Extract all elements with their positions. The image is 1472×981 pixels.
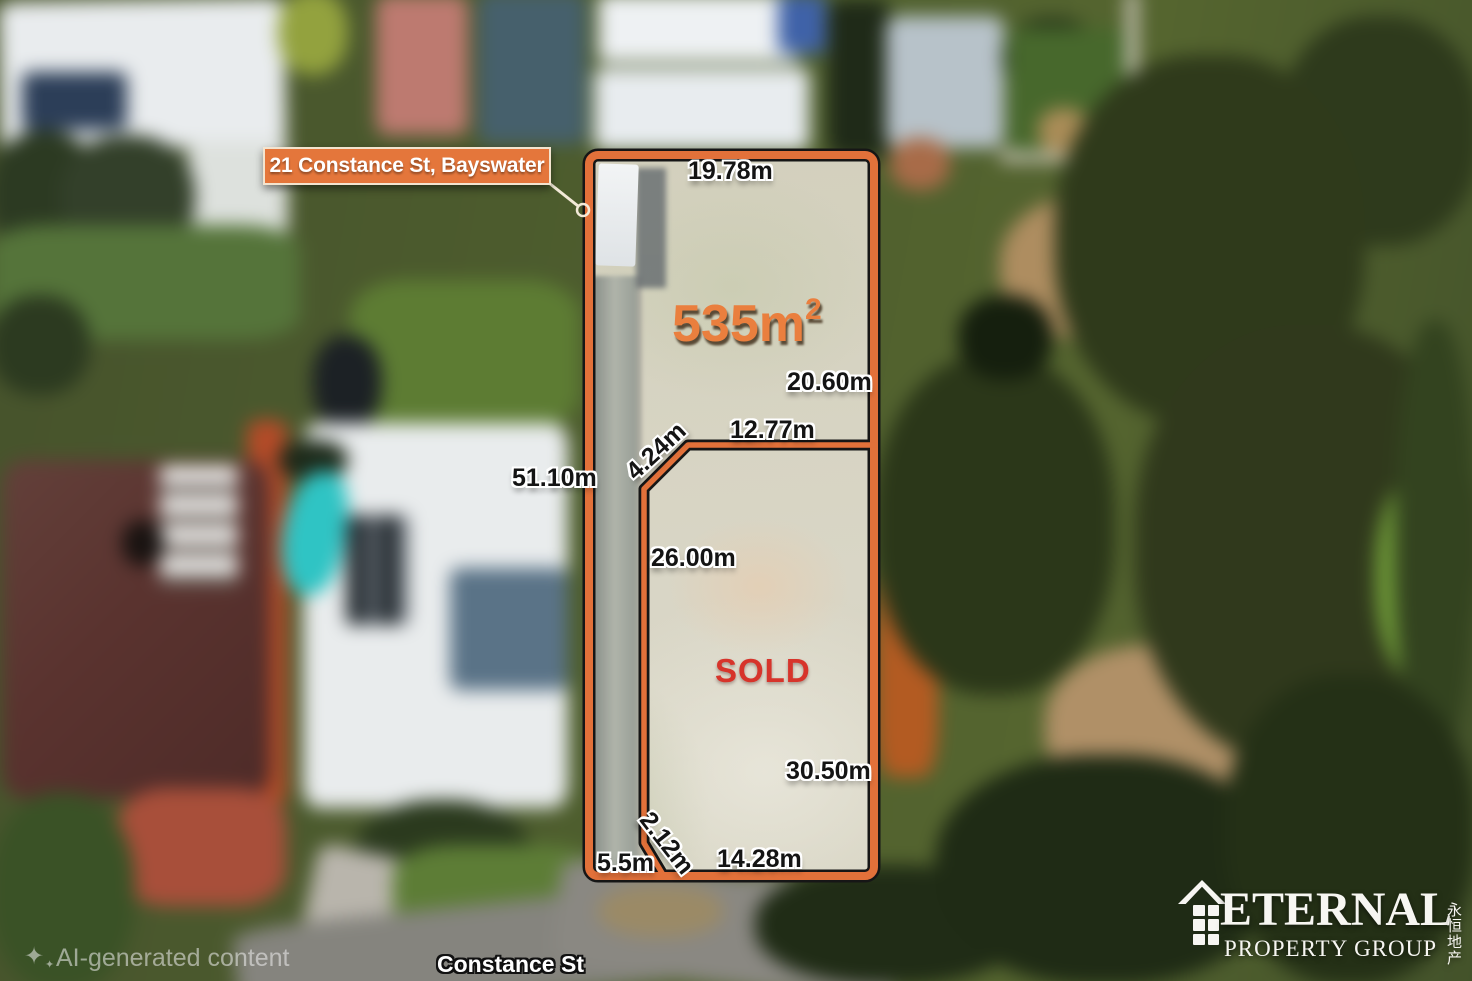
label-leader-line (549, 183, 578, 206)
brand-logo: ETERNAL PROPERTY GROUP 永恒地产 (1178, 874, 1468, 976)
watermark-text: AI-generated content (56, 944, 290, 973)
measurement-right-lower-boundary: 30.50m (786, 757, 871, 786)
lot-annotation-overlay (0, 0, 1472, 981)
lot-area-label: 535m2 (672, 294, 822, 354)
street-name-label: Constance St (437, 951, 584, 978)
address-label: 21 Constance St, Bayswater (263, 147, 551, 185)
lot-area-value: 535m (672, 295, 805, 353)
house-window-icon (1193, 905, 1219, 945)
measurement-right-upper-boundary: 20.60m (787, 368, 872, 397)
house-roof-icon (1178, 880, 1226, 904)
lot-area-superscript: 2 (805, 293, 822, 326)
measurement-divider-horizontal: 12.77m (730, 416, 815, 445)
brand-chinese-name: 永恒地产 (1446, 902, 1461, 966)
brand-subtitle: PROPERTY GROUP (1224, 936, 1437, 962)
brand-name: ETERNAL (1220, 882, 1452, 937)
sparkle-small-icon: ✦ (45, 958, 54, 971)
measurement-bottom-left-boundary: 5.5m (597, 849, 654, 878)
sold-status-label: SOLD (715, 652, 811, 690)
measurement-divider-vertical: 26.00m (651, 544, 736, 573)
sparkle-icon: ✦ (24, 942, 44, 971)
measurement-left-boundary: 51.10m (512, 464, 597, 493)
measurement-bottom-boundary: 14.28m (717, 845, 802, 874)
aerial-property-image: 21 Constance St, Bayswater 19.78m 20.60m… (0, 0, 1472, 981)
measurement-top-boundary: 19.78m (688, 157, 773, 186)
